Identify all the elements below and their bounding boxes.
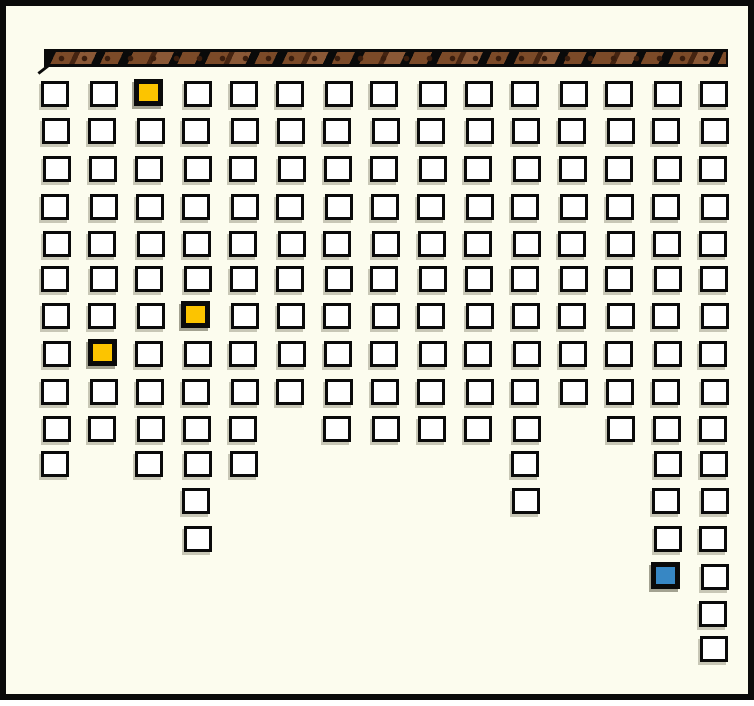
unit-square[interactable]: [41, 451, 69, 477]
unit-square[interactable]: [417, 194, 445, 220]
unit-square[interactable]: [512, 118, 540, 144]
unit-square[interactable]: [701, 379, 729, 405]
unit-square[interactable]: [466, 118, 494, 144]
unit-square[interactable]: [653, 416, 681, 442]
unit-square[interactable]: [370, 156, 398, 182]
unit-square[interactable]: [699, 156, 727, 182]
unit-square[interactable]: [42, 303, 70, 329]
unit-square[interactable]: [370, 266, 398, 292]
unit-square[interactable]: [41, 266, 69, 292]
unit-square[interactable]: [701, 303, 729, 329]
unit-square[interactable]: [325, 266, 353, 292]
unit-square[interactable]: [606, 194, 634, 220]
unit-square[interactable]: [654, 451, 682, 477]
unit-square[interactable]: [560, 81, 588, 107]
unit-square[interactable]: [511, 194, 539, 220]
unit-square[interactable]: [701, 118, 729, 144]
unit-square[interactable]: [466, 303, 494, 329]
unit-square[interactable]: [323, 303, 351, 329]
unit-square[interactable]: [371, 379, 399, 405]
unit-square[interactable]: [419, 81, 447, 107]
unit-square[interactable]: [605, 81, 633, 107]
unit-square[interactable]: [559, 156, 587, 182]
unit-square[interactable]: [559, 341, 587, 367]
unit-square[interactable]: [323, 231, 351, 257]
unit-square[interactable]: [136, 379, 164, 405]
unit-square[interactable]: [700, 636, 728, 662]
unit-square[interactable]: [231, 303, 259, 329]
unit-square[interactable]: [43, 156, 71, 182]
unit-square[interactable]: [607, 416, 635, 442]
unit-square[interactable]: [699, 231, 727, 257]
unit-square[interactable]: [88, 303, 116, 329]
unit-square[interactable]: [372, 303, 400, 329]
unit-square[interactable]: [417, 379, 445, 405]
unit-square[interactable]: [137, 231, 165, 257]
unit-square[interactable]: [511, 266, 539, 292]
unit-square[interactable]: [370, 341, 398, 367]
unit-square[interactable]: [699, 526, 727, 552]
unit-square[interactable]: [325, 194, 353, 220]
unit-square[interactable]: [466, 379, 494, 405]
square-grid: [6, 6, 754, 706]
unit-square[interactable]: [229, 156, 257, 182]
unit-square[interactable]: [231, 194, 259, 220]
board: [0, 0, 754, 700]
unit-square[interactable]: [42, 118, 70, 144]
highlight-square[interactable]: [181, 301, 210, 328]
unit-square[interactable]: [278, 231, 306, 257]
unit-square[interactable]: [89, 156, 117, 182]
unit-square[interactable]: [558, 303, 586, 329]
unit-square[interactable]: [136, 194, 164, 220]
unit-square[interactable]: [230, 451, 258, 477]
unit-square[interactable]: [417, 118, 445, 144]
unit-square[interactable]: [560, 266, 588, 292]
unit-square[interactable]: [372, 416, 400, 442]
unit-square[interactable]: [699, 341, 727, 367]
unit-square[interactable]: [419, 156, 447, 182]
unit-square[interactable]: [277, 118, 305, 144]
unit-square[interactable]: [41, 194, 69, 220]
unit-square[interactable]: [135, 341, 163, 367]
unit-square[interactable]: [41, 81, 69, 107]
unit-square[interactable]: [43, 231, 71, 257]
unit-square[interactable]: [323, 118, 351, 144]
unit-square[interactable]: [699, 416, 727, 442]
unit-square[interactable]: [184, 266, 212, 292]
unit-square[interactable]: [511, 379, 539, 405]
unit-square[interactable]: [230, 81, 258, 107]
unit-square[interactable]: [43, 416, 71, 442]
unit-square[interactable]: [652, 303, 680, 329]
unit-square[interactable]: [513, 156, 541, 182]
unit-square[interactable]: [418, 231, 446, 257]
unit-square[interactable]: [183, 231, 211, 257]
unit-square[interactable]: [418, 416, 446, 442]
unit-square[interactable]: [652, 194, 680, 220]
unit-square[interactable]: [278, 156, 306, 182]
unit-square[interactable]: [558, 231, 586, 257]
unit-square[interactable]: [512, 303, 540, 329]
unit-square[interactable]: [607, 231, 635, 257]
unit-square[interactable]: [372, 118, 400, 144]
highlight-square[interactable]: [88, 339, 117, 366]
unit-square[interactable]: [325, 81, 353, 107]
unit-square[interactable]: [324, 156, 352, 182]
unit-square[interactable]: [464, 416, 492, 442]
unit-square[interactable]: [464, 341, 492, 367]
unit-square[interactable]: [184, 526, 212, 552]
unit-square[interactable]: [137, 118, 165, 144]
unit-square[interactable]: [183, 416, 211, 442]
unit-square[interactable]: [699, 601, 727, 627]
unit-square[interactable]: [417, 303, 445, 329]
unit-square[interactable]: [90, 81, 118, 107]
unit-square[interactable]: [466, 194, 494, 220]
unit-square[interactable]: [276, 194, 304, 220]
unit-square[interactable]: [325, 379, 353, 405]
unit-square[interactable]: [652, 118, 680, 144]
unit-square[interactable]: [465, 81, 493, 107]
unit-square[interactable]: [701, 564, 729, 590]
unit-square[interactable]: [323, 416, 351, 442]
unit-square[interactable]: [90, 266, 118, 292]
unit-square[interactable]: [654, 526, 682, 552]
unit-square[interactable]: [607, 118, 635, 144]
unit-square[interactable]: [276, 266, 304, 292]
unit-square[interactable]: [560, 379, 588, 405]
unit-square[interactable]: [700, 81, 728, 107]
unit-square[interactable]: [182, 118, 210, 144]
unit-square[interactable]: [135, 266, 163, 292]
unit-square[interactable]: [654, 81, 682, 107]
unit-square[interactable]: [606, 379, 634, 405]
unit-square[interactable]: [276, 81, 304, 107]
unit-square[interactable]: [371, 194, 399, 220]
unit-square[interactable]: [182, 379, 210, 405]
unit-square[interactable]: [277, 303, 305, 329]
unit-square[interactable]: [182, 194, 210, 220]
unit-square[interactable]: [43, 341, 71, 367]
unit-square[interactable]: [135, 156, 163, 182]
unit-square[interactable]: [184, 451, 212, 477]
unit-square[interactable]: [231, 379, 259, 405]
unit-square[interactable]: [88, 231, 116, 257]
unit-square[interactable]: [560, 194, 588, 220]
unit-square[interactable]: [654, 156, 682, 182]
unit-square[interactable]: [654, 266, 682, 292]
unit-square[interactable]: [370, 81, 398, 107]
unit-square[interactable]: [558, 118, 586, 144]
unit-square[interactable]: [605, 266, 633, 292]
unit-square[interactable]: [88, 118, 116, 144]
unit-square[interactable]: [278, 341, 306, 367]
unit-square[interactable]: [419, 341, 447, 367]
unit-square[interactable]: [701, 488, 729, 514]
unit-square[interactable]: [276, 379, 304, 405]
unit-square[interactable]: [137, 416, 165, 442]
unit-square[interactable]: [184, 341, 212, 367]
unit-square[interactable]: [513, 416, 541, 442]
unit-square[interactable]: [511, 81, 539, 107]
unit-square[interactable]: [88, 416, 116, 442]
unit-square[interactable]: [419, 266, 447, 292]
unit-square[interactable]: [512, 488, 540, 514]
unit-square[interactable]: [701, 194, 729, 220]
unit-square[interactable]: [41, 379, 69, 405]
unit-square[interactable]: [372, 231, 400, 257]
unit-square[interactable]: [607, 303, 635, 329]
unit-square[interactable]: [184, 156, 212, 182]
unit-square[interactable]: [90, 379, 118, 405]
unit-square[interactable]: [182, 488, 210, 514]
unit-square[interactable]: [231, 118, 259, 144]
highlight-square[interactable]: [651, 562, 680, 589]
unit-square[interactable]: [184, 81, 212, 107]
unit-square[interactable]: [464, 156, 492, 182]
unit-square[interactable]: [653, 231, 681, 257]
unit-square[interactable]: [605, 341, 633, 367]
unit-square[interactable]: [605, 156, 633, 182]
unit-square[interactable]: [137, 303, 165, 329]
unit-square[interactable]: [654, 341, 682, 367]
unit-square[interactable]: [700, 266, 728, 292]
unit-square[interactable]: [229, 416, 257, 442]
unit-square[interactable]: [229, 231, 257, 257]
unit-square[interactable]: [464, 231, 492, 257]
unit-square[interactable]: [229, 341, 257, 367]
unit-square[interactable]: [465, 266, 493, 292]
unit-square[interactable]: [513, 341, 541, 367]
highlight-square[interactable]: [134, 79, 163, 106]
unit-square[interactable]: [652, 488, 680, 514]
unit-square[interactable]: [90, 194, 118, 220]
unit-square[interactable]: [324, 341, 352, 367]
unit-square[interactable]: [511, 451, 539, 477]
unit-square[interactable]: [700, 451, 728, 477]
unit-square[interactable]: [230, 266, 258, 292]
unit-square[interactable]: [513, 231, 541, 257]
unit-square[interactable]: [652, 379, 680, 405]
unit-square[interactable]: [135, 451, 163, 477]
